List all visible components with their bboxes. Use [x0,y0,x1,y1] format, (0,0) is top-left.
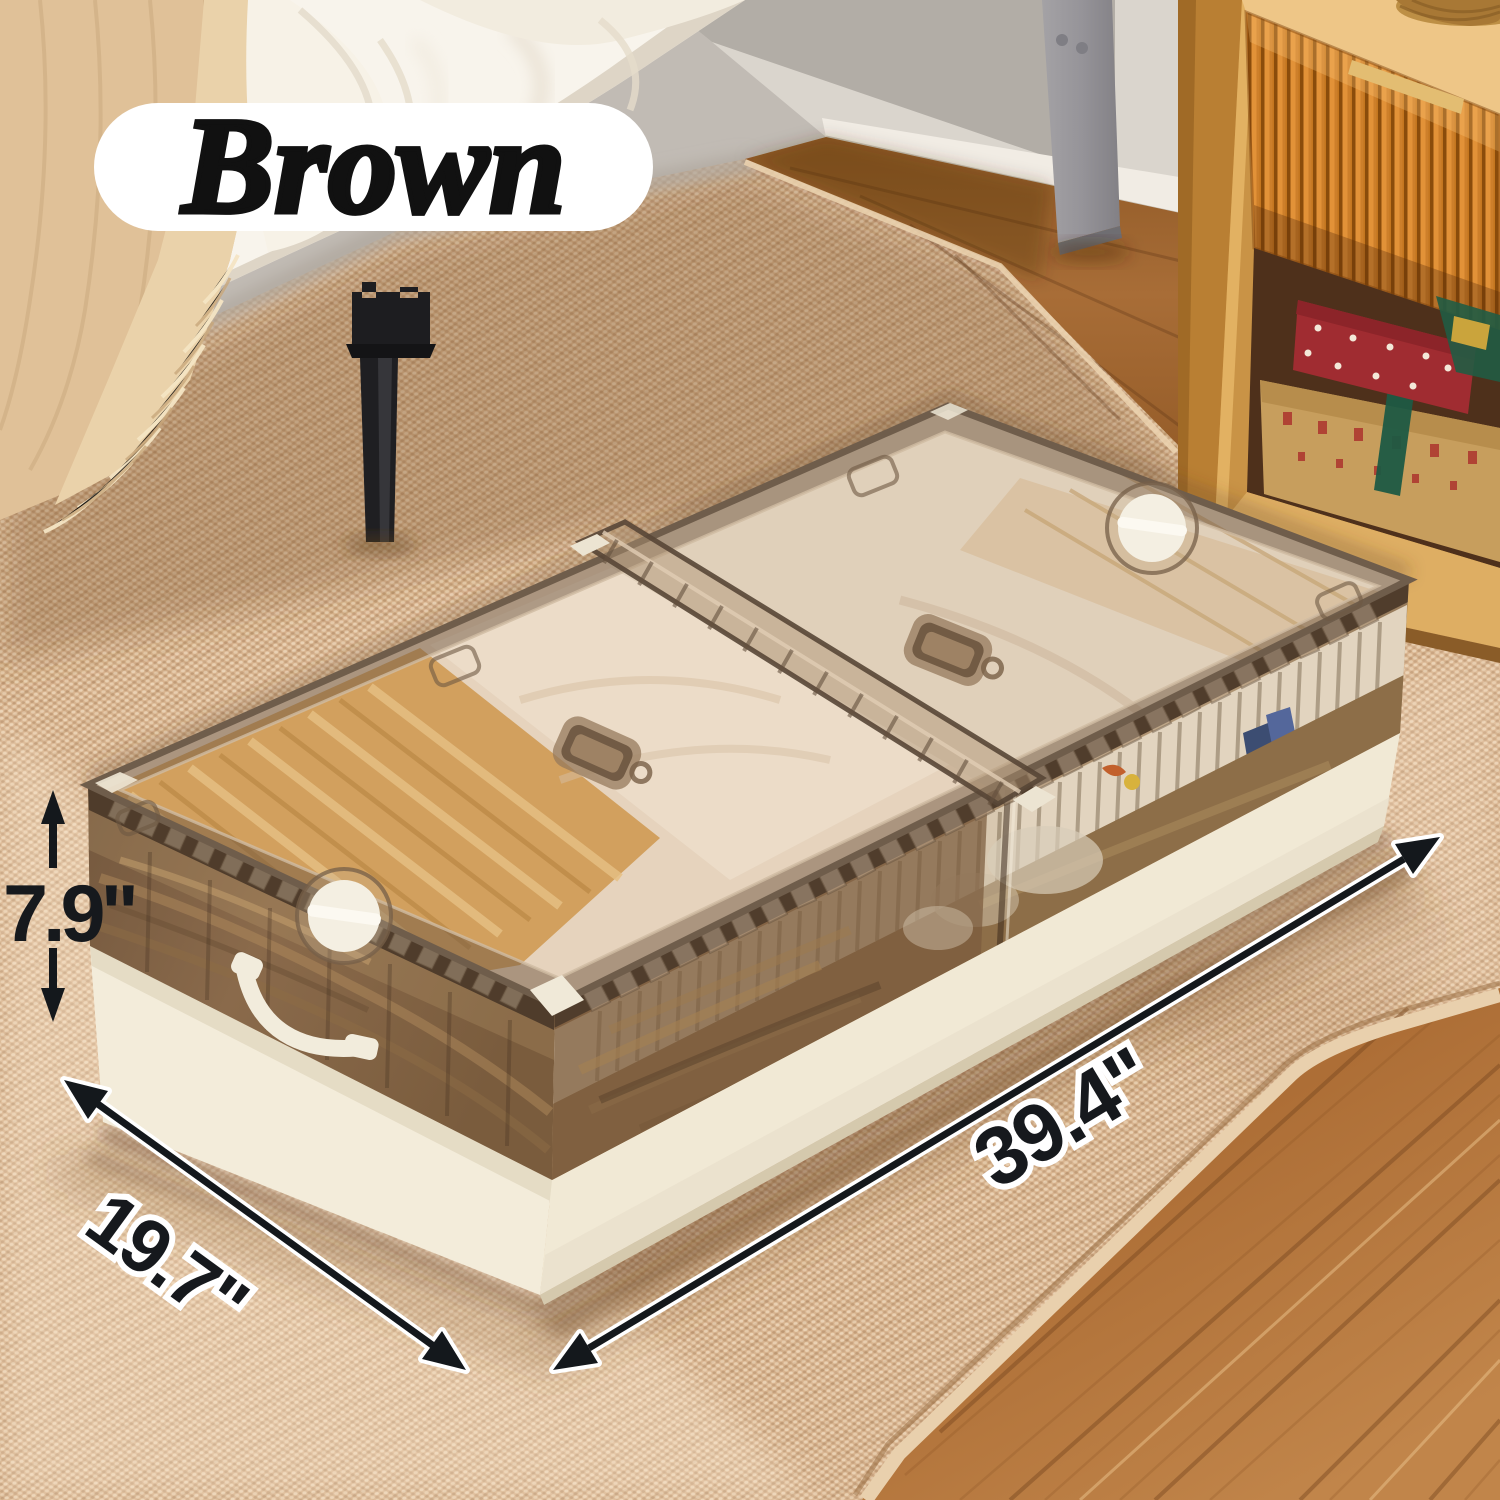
svg-text:7.9": 7.9" [3,869,135,959]
svg-text:Brown: Brown [180,89,566,242]
